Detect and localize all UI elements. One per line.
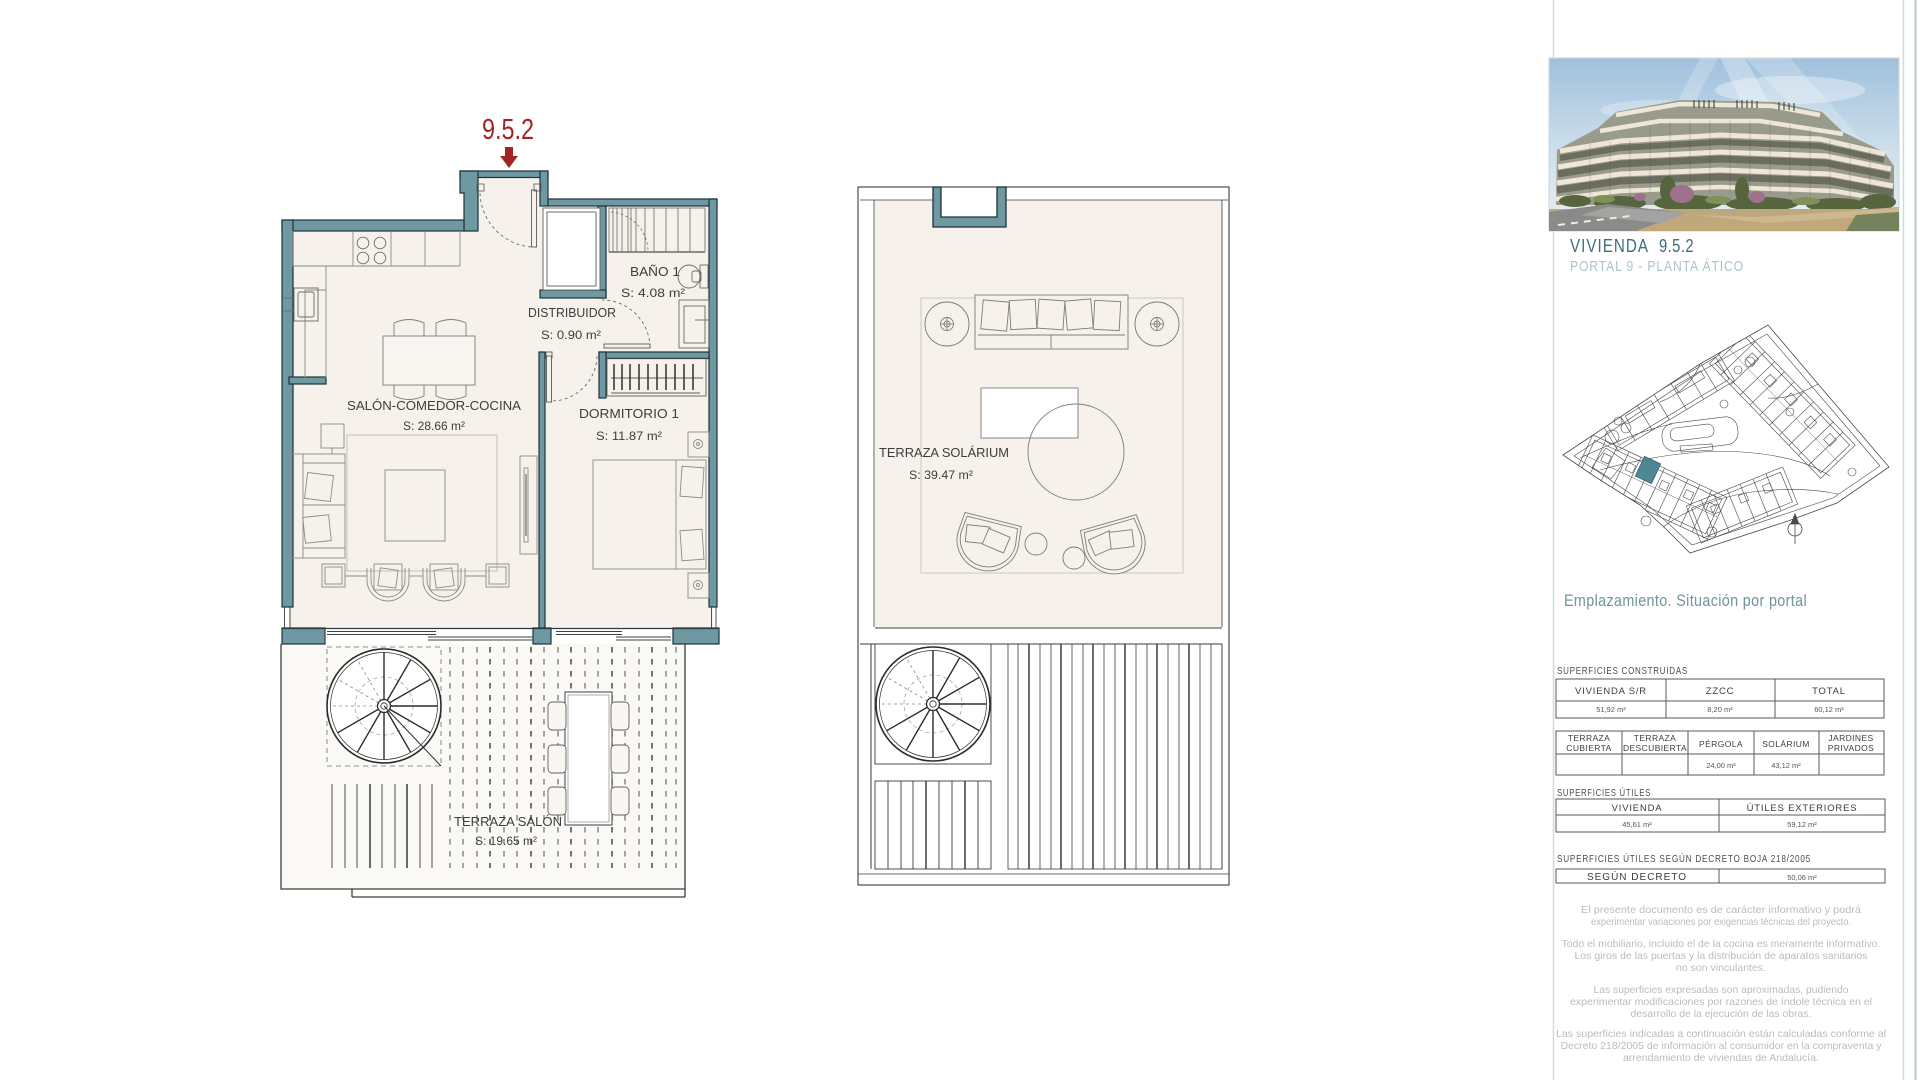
svg-text:DISTRIBUIDOR: DISTRIBUIDOR — [528, 305, 616, 320]
svg-text:S: 39.47 m²: S: 39.47 m² — [909, 468, 973, 482]
svg-text:VIVIENDA: VIVIENDA — [1612, 803, 1663, 814]
svg-text:TERRAZA: TERRAZA — [1568, 733, 1610, 743]
svg-text:JARDINES: JARDINES — [1828, 733, 1873, 743]
svg-text:SOLÁRIUM: SOLÁRIUM — [1762, 739, 1810, 749]
svg-text:SALÓN-COMEDOR-COCINA: SALÓN-COMEDOR-COCINA — [347, 398, 521, 413]
svg-text:9.5.2: 9.5.2 — [1659, 236, 1694, 256]
svg-text:arrendamiento de viviendas de: arrendamiento de viviendas de Andalucía. — [1623, 1052, 1819, 1064]
svg-text:PORTAL 9 - PLANTA ÁTICO: PORTAL 9 - PLANTA ÁTICO — [1570, 258, 1744, 275]
svg-text:Todo el mobiliario, incluido e: Todo el mobiliario, incluido el de la co… — [1562, 938, 1881, 950]
svg-text:PRIVADOS: PRIVADOS — [1828, 743, 1875, 753]
svg-text:desarrollo de la ejecución de: desarrollo de la ejecución de las obras. — [1631, 1008, 1812, 1020]
svg-text:VIVIENDA: VIVIENDA — [1570, 236, 1649, 256]
svg-text:SUPERFICIES ÚTILES: SUPERFICIES ÚTILES — [1557, 786, 1651, 799]
svg-text:ÚTILES EXTERIORES: ÚTILES EXTERIORES — [1747, 803, 1858, 814]
svg-text:El presente documento es de ca: El presente documento es de carácter inf… — [1581, 904, 1861, 916]
svg-text:no son vinculantes.: no son vinculantes. — [1676, 962, 1766, 974]
svg-text:experimentar variaciones por e: experimentar variaciones por exigencias … — [1591, 916, 1851, 928]
svg-text:S: 11.87 m²: S: 11.87 m² — [596, 429, 662, 443]
svg-text:TOTAL: TOTAL — [1812, 686, 1846, 697]
svg-text:59,12 m²: 59,12 m² — [1787, 820, 1817, 829]
svg-text:43,12 m²: 43,12 m² — [1771, 761, 1801, 770]
svg-text:8,20 m²: 8,20 m² — [1707, 705, 1733, 714]
svg-text:50,06 m²: 50,06 m² — [1787, 873, 1817, 882]
svg-text:BAÑO 1: BAÑO 1 — [630, 264, 680, 279]
svg-text:Emplazamiento. Situación por p: Emplazamiento. Situación por portal — [1564, 592, 1807, 610]
svg-text:S: 0.90 m²: S: 0.90 m² — [541, 328, 601, 342]
svg-text:PÉRGOLA: PÉRGOLA — [1699, 739, 1743, 749]
svg-text:TERRAZA: TERRAZA — [1634, 733, 1676, 743]
svg-text:TERRAZA SOLÁRIUM: TERRAZA SOLÁRIUM — [879, 445, 1009, 460]
svg-text:VIVIENDA S/R: VIVIENDA S/R — [1575, 686, 1647, 697]
svg-text:CUBIERTA: CUBIERTA — [1566, 743, 1611, 753]
svg-text:60,12 m²: 60,12 m² — [1814, 705, 1844, 714]
svg-text:45,61 m²: 45,61 m² — [1622, 820, 1652, 829]
svg-text:Decreto 218/2005 de informació: Decreto 218/2005 de información al consu… — [1561, 1040, 1883, 1052]
svg-text:Los giros de las puertas y la: Los giros de las puertas y la distribuci… — [1575, 950, 1868, 962]
svg-text:S: 19.65 m²: S: 19.65 m² — [475, 834, 537, 848]
svg-text:SUPERFICIES ÚTILES SEGÚN DECRE: SUPERFICIES ÚTILES SEGÚN DECRETO BOJA 21… — [1557, 852, 1811, 865]
svg-text:Las superficies expresadas son: Las superficies expresadas son aproximad… — [1594, 984, 1849, 996]
svg-text:9.5.2: 9.5.2 — [482, 114, 534, 146]
svg-text:ZZCC: ZZCC — [1706, 686, 1735, 697]
svg-text:TERRAZA SALÓN: TERRAZA SALÓN — [454, 814, 562, 829]
svg-text:24,00 m²: 24,00 m² — [1706, 761, 1736, 770]
svg-text:S: 4.08 m²: S: 4.08 m² — [621, 286, 685, 300]
svg-text:Las superficies indicadas a co: Las superficies indicadas a continuación… — [1556, 1028, 1886, 1040]
svg-text:S: 28.66 m²: S: 28.66 m² — [403, 419, 465, 433]
svg-text:DORMITORIO 1: DORMITORIO 1 — [579, 406, 679, 421]
svg-text:DESCUBIERTA: DESCUBIERTA — [1623, 743, 1687, 753]
svg-text:experimentar modificaciones po: experimentar modificaciones por razones … — [1570, 996, 1872, 1008]
svg-text:51,92 m²: 51,92 m² — [1596, 705, 1626, 714]
svg-text:SUPERFICIES CONSTRUIDAS: SUPERFICIES CONSTRUIDAS — [1557, 665, 1688, 677]
svg-text:SEGÚN DECRETO: SEGÚN DECRETO — [1587, 870, 1687, 883]
